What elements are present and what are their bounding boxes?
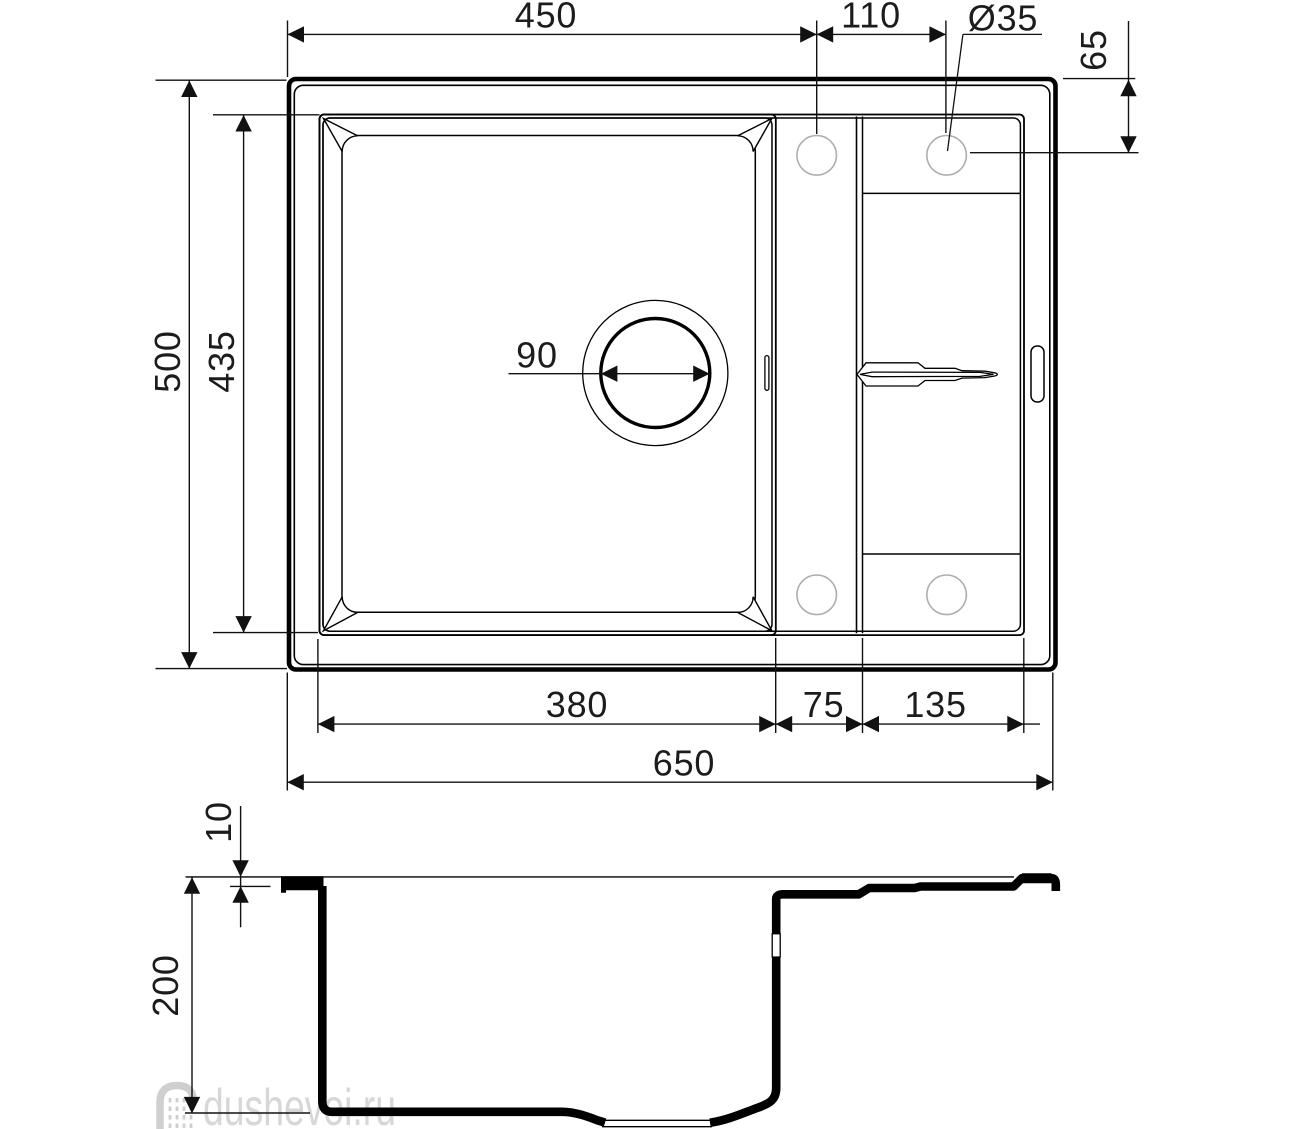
svg-text:650: 650 xyxy=(653,743,715,784)
svg-text:75: 75 xyxy=(803,684,845,725)
svg-text:435: 435 xyxy=(201,330,242,392)
svg-text:90: 90 xyxy=(516,335,558,376)
svg-text:500: 500 xyxy=(147,330,188,392)
svg-text:65: 65 xyxy=(1073,29,1114,71)
svg-text:450: 450 xyxy=(515,0,577,36)
svg-text:Ø35: Ø35 xyxy=(968,0,1038,39)
svg-text:200: 200 xyxy=(145,954,186,1016)
svg-text:135: 135 xyxy=(904,684,966,725)
svg-text:110: 110 xyxy=(841,0,901,36)
svg-text:dushevoi.ru: dushevoi.ru xyxy=(203,1079,396,1129)
svg-text:10: 10 xyxy=(198,801,239,843)
svg-text:380: 380 xyxy=(546,684,608,725)
